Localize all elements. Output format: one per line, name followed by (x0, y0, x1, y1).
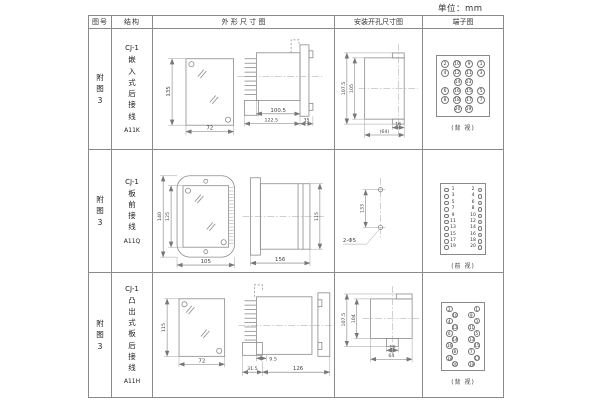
terminal-8: 8 (469, 207, 478, 212)
fig-no-row2: 附 图 3 (96, 194, 104, 228)
install-svg-row3: 107.5 104 16 64 (335, 273, 422, 396)
header-structure: 结构 (112, 16, 153, 29)
terminal-view-row1: (背 视) (451, 123, 475, 132)
terminal-7: 7 (477, 96, 485, 104)
terminal-3: 3 (477, 69, 485, 77)
dim-body-len-row3: 126 (293, 366, 304, 372)
terminal-7: 7 (468, 348, 475, 355)
dim-base-w-row3: 31.5 (247, 366, 258, 372)
dim-front-width-row1: 72 (206, 126, 213, 132)
terminal-row: 2019 (441, 104, 485, 113)
terminal-15: 15 (449, 233, 458, 238)
fig-no-row1: 附 图 3 (96, 72, 104, 106)
dim-front-h-row3: 115 (161, 323, 167, 332)
terminal-15: 15 (465, 87, 473, 95)
dim-body-h-row2: 115 (314, 212, 320, 221)
terminal-row: 616155 (441, 86, 485, 95)
terminal-20: 20 (452, 361, 459, 368)
install-drawing-row2: 133 2-Φ5 (335, 150, 423, 273)
terminal-20: 20 (469, 245, 478, 250)
terminal-11: 11 (449, 220, 458, 225)
terminal-15: 15 (474, 342, 481, 349)
code-row1: A11K (124, 127, 140, 134)
terminal-2: 2 (441, 60, 449, 68)
terminal-16: 16 (453, 87, 461, 95)
model-row3: CJ-1 (125, 285, 139, 293)
code-row2: A11Q (124, 238, 140, 245)
terminal-6: 6 (441, 87, 449, 95)
terminal-6: 6 (446, 330, 453, 337)
terminal-row: 2019 (446, 361, 480, 367)
terminal-4: 4 (446, 318, 453, 325)
model-row1: CJ-1 (125, 44, 139, 52)
terminal-16: 16 (446, 342, 453, 349)
terminal-hole (478, 201, 483, 206)
mounting-row3: 凸 出 式 板 后 接 线 (128, 295, 136, 374)
terminal-14: 14 (469, 226, 478, 231)
terminal-17: 17 (474, 355, 481, 362)
terminal-10: 10 (469, 214, 478, 219)
terminal-10: 10 (453, 60, 461, 68)
dim-front-w-row3: 72 (198, 358, 205, 364)
terminal-1: 1 (477, 60, 485, 68)
fig-no-cell-row1: 附 图 3 (89, 29, 112, 150)
terminal-19: 19 (465, 105, 473, 113)
terminal-9: 9 (449, 214, 458, 219)
terminal-9: 9 (468, 312, 475, 319)
dim-hole-w-row3: 16 (389, 344, 395, 350)
structure-cell-row3: CJ-1 凸 出 式 板 后 接 线 A11H (112, 273, 153, 397)
terminal-row: 412113 (441, 68, 485, 77)
terminal-18: 18 (446, 355, 453, 362)
terminal-19: 19 (468, 361, 475, 368)
install-svg-row2: 133 2-Φ5 (335, 150, 422, 272)
fig-no-cell-row2: 附 图 3 (89, 150, 112, 273)
terminal-hole (478, 239, 483, 244)
dim-outer-h-row3: 107.5 (341, 313, 347, 327)
mounting-row1: 嵌 入 式 后 接 线 (128, 54, 136, 122)
terminal-16: 16 (469, 233, 478, 238)
dim-front-w-row2: 105 (201, 259, 211, 265)
terminal-hole (478, 207, 483, 212)
terminal-2: 2 (446, 306, 453, 313)
fig-no-cell-row3: 附 图 3 (89, 273, 112, 397)
code-row3: A11H (124, 378, 140, 385)
install-drawing-row1: 107.5 105 16 (64) (335, 29, 423, 150)
terminal-12: 12 (452, 324, 459, 331)
dim-inner-h-row2: 125 (165, 212, 171, 221)
outline-drawing-row2: 140 125 105 156 115 (153, 150, 335, 273)
terminal-7: 7 (449, 207, 458, 212)
terminal-1: 1 (449, 188, 458, 193)
terminal-hole (478, 245, 483, 250)
terminal-view-row3: (背 视) (451, 377, 475, 386)
terminal-13: 13 (449, 226, 458, 231)
hole-note-row2: 2-Φ5 (343, 238, 356, 244)
terminal-5: 5 (474, 330, 481, 337)
terminal-view-row2: (前 视) (451, 261, 475, 270)
dim-front-height-row1: 135 (166, 86, 172, 96)
outline-svg-row1: 135 72 100.5 122.5 (153, 29, 334, 149)
dim-flange-depth-row1: 35 (303, 118, 309, 124)
terminal-hole (478, 233, 483, 238)
install-svg-row1: 107.5 105 16 (64) (335, 29, 422, 149)
terminal-3: 3 (449, 194, 458, 199)
terminal-diagram-row2: 1234567891011121314151617181920 (440, 183, 486, 255)
terminal-4: 4 (469, 194, 478, 199)
outline-svg-row2: 140 125 105 156 115 (153, 150, 334, 272)
terminal-11: 11 (465, 69, 473, 77)
header-terminal: 端子图 (423, 16, 503, 29)
dim-body-len-row1: 100.5 (270, 108, 286, 114)
terminal-10: 10 (452, 312, 459, 319)
terminal-hole (478, 188, 483, 193)
dim-hole-span-row1: (64) (380, 129, 390, 135)
terminal-5: 5 (449, 201, 458, 206)
pin-comb-row3 (244, 301, 256, 340)
mounting-row2: 板 前 接 线 (128, 188, 136, 233)
outline-drawing-row3: 115 72 9.5 31.5 126 (153, 273, 335, 397)
dim-hole-pitch-row2: 133 (360, 204, 366, 213)
terminal-6: 6 (469, 201, 478, 206)
spec-table: 图号 结构 外 形 尺 寸 图 安装开孔尺寸图 端子图 附 图 3 CJ-1 嵌… (88, 15, 504, 398)
terminal-row: 1920 (444, 245, 482, 251)
terminal-hole (478, 214, 483, 219)
outline-drawing-row1: 135 72 100.5 122.5 (153, 29, 335, 150)
terminal-row: 818177 (441, 95, 485, 104)
outline-svg-row3: 115 72 9.5 31.5 126 (153, 273, 334, 396)
terminal-17: 17 (449, 239, 458, 244)
header-install-dims: 安装开孔尺寸图 (335, 16, 423, 29)
dim-hole-w-row1: 16 (395, 122, 401, 128)
terminal-8: 8 (452, 348, 459, 355)
fig-no-row3: 附 图 3 (96, 318, 104, 352)
dim-overall-len-row1: 122.5 (264, 118, 278, 124)
terminal-8: 8 (441, 96, 449, 104)
dim-body-len-row2: 156 (275, 257, 286, 263)
terminal-cell-row3: 2110943121165141316158718172019 (背 视) (423, 273, 503, 397)
terminal-18: 18 (469, 239, 478, 244)
terminal-hole (478, 194, 483, 199)
header-outline-dims: 外 形 尺 寸 图 (153, 16, 335, 29)
header-fig-no: 图号 (89, 16, 112, 29)
terminal-18: 18 (453, 96, 461, 104)
terminal-hole (478, 226, 483, 231)
terminal-2: 2 (469, 188, 478, 193)
terminal-14: 14 (452, 336, 459, 343)
terminal-14: 14 (454, 78, 462, 86)
terminal-17: 17 (465, 96, 473, 104)
dim-inner-h-row3: 104 (351, 314, 357, 323)
terminal-cell-row2: 1234567891011121314151617181920 (前 视) (423, 150, 503, 273)
dim-pin-len-row3: 9.5 (269, 356, 277, 362)
terminal-4: 4 (441, 69, 449, 77)
terminal-20: 20 (454, 105, 462, 113)
terminal-hole (478, 220, 483, 225)
terminal-9: 9 (465, 60, 473, 68)
terminal-strip-row2 (229, 188, 234, 244)
model-row2: CJ-1 (125, 178, 139, 186)
terminal-13: 13 (468, 336, 475, 343)
terminal-row: 21091 (441, 59, 485, 68)
terminal-diagram-row1: 2109141211314136161558181772019 (436, 55, 490, 117)
terminal-12: 12 (453, 69, 461, 77)
dim-inner-height-row1: 105 (349, 84, 355, 93)
structure-cell-row2: CJ-1 板 前 接 线 A11Q (112, 150, 153, 273)
unit-label: 单位：mm (438, 2, 483, 14)
structure-cell-row1: CJ-1 嵌 入 式 后 接 线 A11K (112, 29, 153, 150)
install-drawing-row3: 107.5 104 16 64 (335, 273, 423, 397)
terminal-19: 19 (449, 245, 458, 250)
dim-outer-h-row2: 140 (157, 212, 163, 221)
terminal-cell-row1: 2109141211314136161558181772019 (背 视) (423, 29, 503, 150)
terminal-12: 12 (469, 220, 478, 225)
dim-hole-span-row3: 64 (388, 353, 394, 359)
terminal-11: 11 (468, 324, 475, 331)
terminal-row: 1413 (441, 77, 485, 86)
dim-outer-height-row1: 107.5 (341, 82, 347, 96)
terminal-13: 13 (465, 78, 473, 86)
terminal-5: 5 (477, 87, 485, 95)
terminal-diagram-row3: 2110943121165141316158718172019 (441, 302, 485, 371)
document-page: { "unit_label": "单位：mm", "table": { "hea… (0, 0, 600, 400)
